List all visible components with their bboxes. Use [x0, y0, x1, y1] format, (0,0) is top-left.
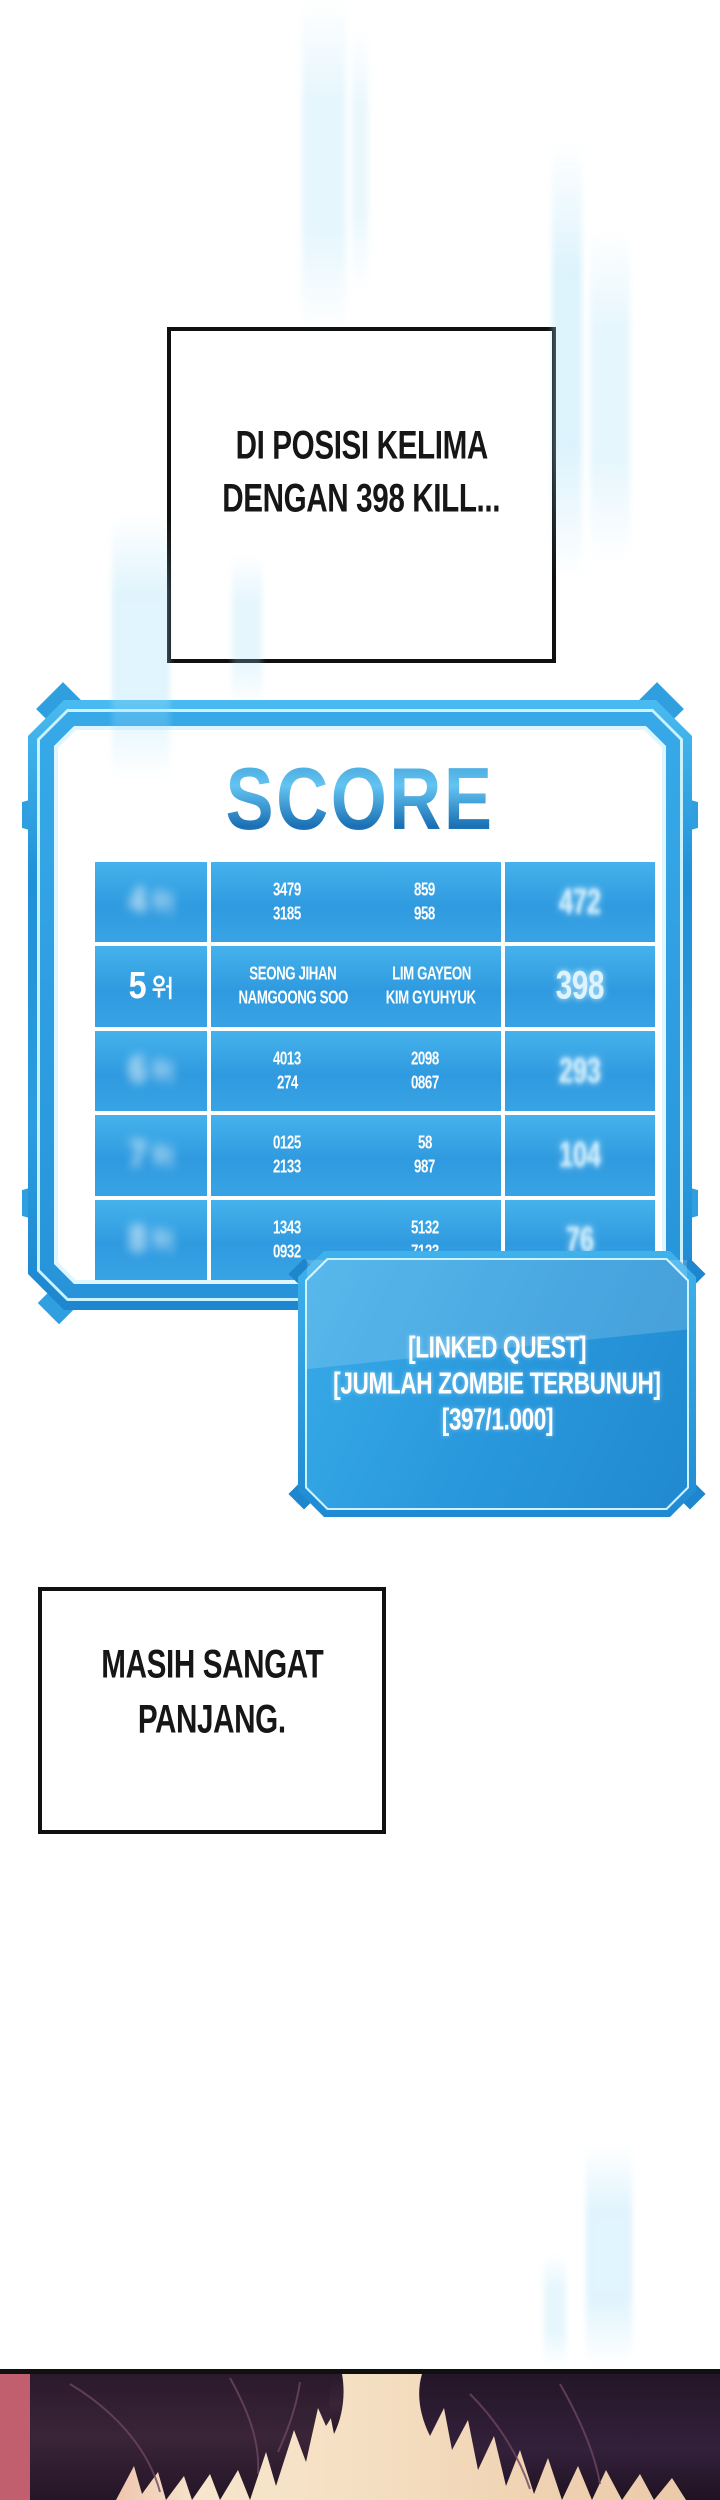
player-name: 274	[276, 1072, 297, 1093]
player-name: 859	[414, 879, 435, 900]
light-beam	[586, 2145, 632, 2365]
names-cell: SEONG JIHAN LIM GAYEON NAMGOONG SOO KIM …	[211, 946, 501, 1026]
player-name: 3479	[273, 879, 301, 900]
player-name: 987	[414, 1157, 435, 1178]
speech-top-line1: DI POSISI KELIMA	[200, 420, 523, 473]
light-beam	[552, 140, 582, 580]
rank-cell: 8	[95, 1200, 207, 1280]
rank-number: 6	[129, 1049, 147, 1092]
rank-suffix-wi-glyph	[151, 1226, 175, 1256]
player-name: 1343	[273, 1217, 301, 1238]
rank-cell: 5	[95, 946, 207, 1026]
rank-cell: 4	[95, 862, 207, 942]
player-name: SEONG JIHAN	[250, 964, 337, 985]
names-cell: 3479 859 3185 958	[211, 862, 501, 942]
bottom-art-panel	[0, 2369, 720, 2500]
rank-number: 8	[129, 1218, 147, 1261]
rank-number: 5	[129, 965, 147, 1008]
player-name: LIM GAYEON	[392, 964, 471, 985]
player-name: 5132	[411, 1217, 439, 1238]
score-panel: SCORE 4 3479 859 3185 958 472 5	[28, 700, 692, 1310]
light-beam	[352, 30, 368, 290]
quest-title: [LINKED QUEST]	[383, 1330, 611, 1366]
kill-score: 293	[559, 1051, 601, 1091]
player-name: 0932	[273, 1241, 301, 1262]
speech-bottom-line2: PANJANG.	[117, 1693, 307, 1748]
names-cell: 4013 2098 274 0867	[211, 1031, 501, 1111]
names-cell: 0125 58 2133 987	[211, 1115, 501, 1195]
score-table: 4 3479 859 3185 958 472 5 SEONG JIHAN	[95, 862, 625, 1280]
quest-objective: [JUMLAH ZOMBIE TERBUNUH]	[287, 1366, 707, 1402]
rank-number: 4	[129, 880, 147, 923]
rank-number: 7	[129, 1134, 147, 1177]
player-name: 2098	[411, 1048, 439, 1069]
rank-suffix-wi-glyph	[151, 1057, 175, 1087]
kill-score: 472	[559, 882, 601, 922]
speech-top-line2: DENGAN 398 KILL...	[183, 473, 539, 526]
player-name: 58	[418, 1133, 432, 1154]
rank-suffix-wi-glyph	[151, 888, 175, 918]
rank-suffix-wi-glyph	[151, 1142, 175, 1172]
rank-suffix-wi-glyph	[151, 973, 175, 1003]
light-beam	[590, 230, 630, 560]
light-beam	[302, 0, 346, 330]
art-two-heads	[0, 2374, 720, 2500]
player-name: KIM GYUHYUK	[386, 988, 476, 1009]
score-cell: 293	[505, 1031, 655, 1111]
player-name: 2133	[273, 1157, 301, 1178]
rank-cell: 6	[95, 1031, 207, 1111]
webtoon-page: DI POSISI KELIMA DENGAN 398 KILL... SCOR…	[0, 0, 720, 2500]
quest-progress: [397/1.000]	[426, 1402, 569, 1438]
score-cell: 472	[505, 862, 655, 942]
player-name: 958	[414, 903, 435, 924]
player-name: 0867	[411, 1072, 439, 1093]
speech-box-top: DI POSISI KELIMA DENGAN 398 KILL...	[167, 327, 556, 663]
score-cell: 104	[505, 1115, 655, 1195]
player-name: NAMGOONG SOO	[238, 988, 348, 1009]
kill-score: 398	[556, 964, 604, 1010]
light-beam	[544, 2255, 566, 2365]
player-name: 0125	[273, 1133, 301, 1154]
speech-box-bottom: MASIH SANGAT PANJANG.	[38, 1587, 386, 1834]
score-cell: 398	[505, 946, 655, 1026]
player-name: 4013	[273, 1048, 301, 1069]
player-name: 3185	[273, 903, 301, 924]
score-title: SCORE	[112, 730, 607, 854]
rank-cell: 7	[95, 1115, 207, 1195]
speech-bottom-line1: MASIH SANGAT	[70, 1638, 355, 1693]
kill-score: 104	[559, 1135, 601, 1175]
linked-quest-panel: [LINKED QUEST] [JUMLAH ZOMBIE TERBUNUH] …	[298, 1251, 696, 1517]
